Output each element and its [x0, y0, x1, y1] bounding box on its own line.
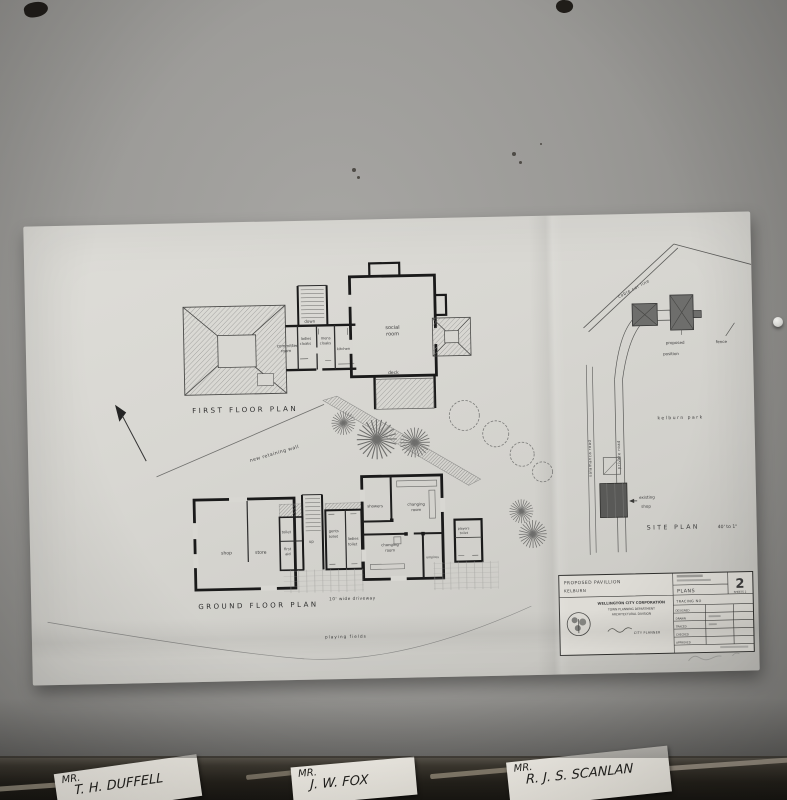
wall-shadow: [0, 698, 787, 758]
wall-speck: [540, 143, 542, 145]
dark-mark: [23, 0, 50, 19]
site-plan-scale: 40' to 1": [718, 524, 738, 530]
illegible-text: [709, 623, 717, 625]
table-row-traced: TRACED: [675, 624, 687, 628]
table-row-drawn: DRAWN: [676, 616, 686, 620]
room-label-social: social: [385, 325, 399, 331]
room-label-showers: showers: [367, 503, 383, 508]
existing-shop-label-2: shop: [641, 504, 651, 509]
illegible-text: [709, 615, 721, 617]
room-label-kitchen: kitchen: [337, 347, 350, 351]
proposed-position-label: proposed: [666, 340, 685, 345]
room-label-mens-cloaks: mens: [321, 336, 331, 340]
tree-icon: [449, 400, 480, 431]
existing-shop-label: existing: [639, 494, 655, 499]
stair-label-up: up: [309, 539, 315, 544]
tree-icon: [356, 419, 397, 460]
room-label-gents-2: toilet: [329, 535, 339, 539]
tracing-no-label: TRACING NO: [675, 599, 701, 604]
ground-floor-plan: shop store toilet first aid up gents toi…: [45, 473, 533, 665]
driveway-note: 10' wide driveway: [329, 595, 376, 601]
title-block: PROPOSED PAVILLION KELBURN PLANS 2 SHEET…: [559, 571, 755, 663]
room-label-store: store: [255, 550, 267, 556]
first-floor-plan-title: FIRST FLOOR PLAN: [192, 405, 298, 415]
stair-label-down: down: [304, 319, 315, 324]
room-label-toilet: toilet: [282, 530, 292, 534]
tree-icon: [509, 499, 533, 523]
plan-drawing: committee room down ladies cloaks mens c…: [23, 211, 759, 685]
room-label-ladies-cloaks: ladies: [301, 337, 312, 341]
kelburn-park-label: kelburn park: [657, 414, 703, 421]
project-location: KELBURN: [564, 588, 586, 593]
deck-label: deck: [388, 370, 399, 376]
table-row-approved: APPROVED: [676, 640, 691, 644]
content-label: PLANS: [677, 588, 695, 594]
landscaping: new retaining wall: [155, 392, 554, 556]
room-label-changing-top: changing: [407, 501, 425, 506]
table-row-checked: CHECKED: [676, 632, 689, 636]
site-plan-title: SITE PLAN: [647, 524, 700, 532]
signature-title: CITY PLANNER: [634, 630, 661, 635]
north-arrow-icon: [115, 404, 146, 462]
wall-speck: [357, 176, 360, 179]
salamanca-road-label: salamanca road: [587, 439, 593, 476]
room-label-gents: gents: [329, 529, 339, 533]
tree-icon: [519, 520, 548, 549]
fence-label: fence: [716, 339, 728, 344]
playing-fields-note: playing fields: [325, 634, 367, 640]
room-label-players-2: toilet: [460, 531, 469, 535]
room-label-shop: shop: [221, 550, 232, 556]
room-label-ladies-cloaks-2: cloaks: [300, 342, 312, 346]
ground-floor-plan-title: GROUND FLOOR PLAN: [198, 601, 319, 612]
project-title: PROPOSED PAVILLION: [564, 579, 621, 586]
room-label-umpires: umpires: [426, 555, 439, 559]
room-label-first-aid: first: [284, 547, 292, 551]
photograph: committee room down ladies cloaks mens c…: [0, 0, 787, 800]
wall-speck: [352, 168, 356, 172]
wall-speck: [512, 152, 516, 156]
room-label-committee-2: room: [281, 348, 292, 353]
room-label-changing-bottom: changing: [381, 542, 399, 547]
site-plan: cable car line salamanca road private ro…: [582, 242, 757, 554]
sheet-number: 2: [735, 577, 744, 592]
room-label-first-aid-2: aid: [285, 552, 291, 556]
dark-mark: [555, 0, 574, 14]
first-floor-plan: committee room down ladies cloaks mens c…: [182, 261, 472, 415]
room-label-ladies-2: toilet: [348, 542, 358, 546]
tree-icon: [482, 421, 509, 448]
retaining-wall-label: new retaining wall: [249, 444, 300, 464]
room-label-changing-top-2: room: [411, 507, 421, 512]
org-division: ARCHITECTURAL DIVISION: [612, 612, 651, 617]
wall-speck: [519, 161, 522, 164]
room-label-social-2: room: [386, 331, 399, 337]
pin-head: [773, 317, 783, 327]
pencil-scribble: [688, 656, 721, 661]
sheet-count: SHEETS 2: [734, 590, 747, 594]
tree-icon: [532, 462, 552, 482]
architectural-drawing-sheet: committee room down ladies cloaks mens c…: [23, 211, 759, 685]
table-row-designed: DESIGNED: [675, 608, 689, 612]
pencil-scribble: [732, 653, 739, 656]
tree-icon: [510, 442, 534, 466]
proposed-position-label-2: position: [663, 351, 679, 356]
room-label-changing-bottom-2: room: [385, 547, 395, 552]
room-label-mens-cloaks-2: cloaks: [320, 341, 332, 345]
room-label-ladies: ladies: [348, 537, 359, 541]
